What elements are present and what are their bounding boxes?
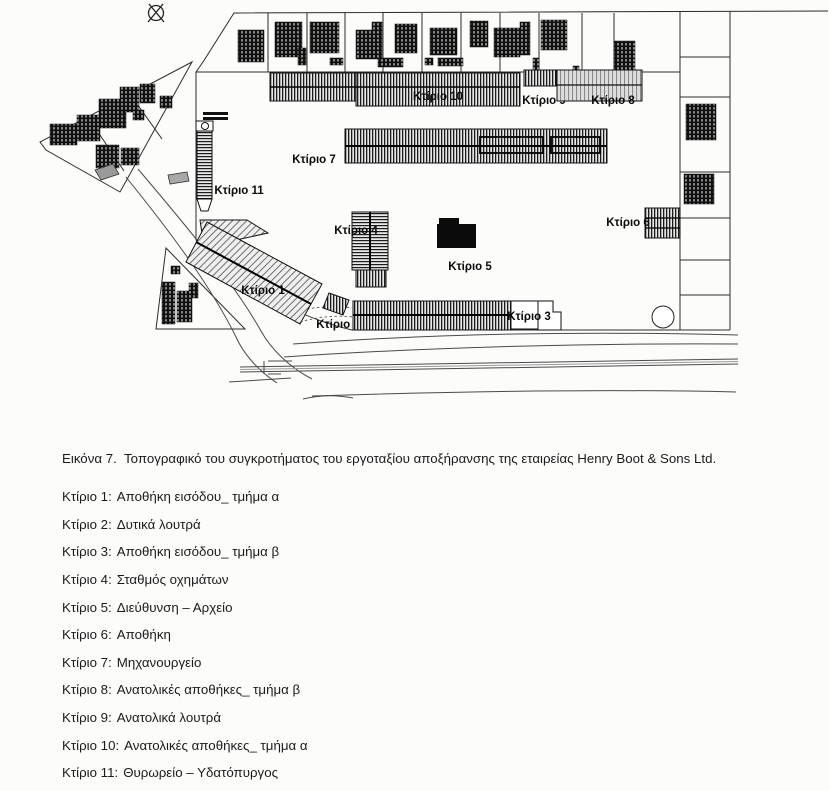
building-10-label: Κτίριο 10 (413, 91, 463, 103)
legend-item-description: Ανατολικά λουτρά (117, 710, 221, 725)
legend-item-description: Αποθήκη (117, 627, 171, 642)
legend-item-description: Αποθήκη εισόδου_ τμήμα β (117, 544, 279, 559)
west-residential-block (40, 62, 192, 192)
legend-item-6: Κτίριο 6:Αποθήκη (62, 621, 662, 649)
legend-item-description: Δυτικά λουτρά (117, 517, 201, 532)
legend-item-description: Ανατολικές αποθήκες_ τμήμα β (117, 682, 300, 697)
legend-item-4: Κτίριο 4:Σταθμός οχημάτων (62, 566, 662, 594)
legend-item-description: Αποθήκη εισόδου_ τμήμα α (117, 489, 279, 504)
legend-item-5: Κτίριο 5:Διεύθυνση – Αρχείο (62, 593, 662, 621)
legend-item-9: Κτίριο 9:Ανατολικά λουτρά (62, 704, 662, 732)
building-5: Κτίριο 5 (437, 218, 492, 273)
legend-item-2: Κτίριο 2:Δυτικά λουτρά (62, 511, 662, 539)
roadside-shed (168, 172, 189, 184)
building-6: Κτίριο 6 (606, 208, 680, 238)
building-5-label: Κτίριο 5 (448, 261, 492, 273)
building-1: Κτίριο 1 (186, 220, 322, 324)
legend-item-description: Ανατολικές αποθήκες_ τμήμα α (124, 738, 307, 753)
legend-item-name: Κτίριο 2: (62, 517, 112, 532)
legend-item-name: Κτίριο 4: (62, 572, 112, 587)
building-11: Κτίριο 11 (196, 112, 264, 211)
legend-item-name: Κτίριο 10: (62, 738, 119, 753)
building-4-label: Κτίριο 4 (334, 225, 378, 237)
legend-item-name: Κτίριο 7: (62, 655, 112, 670)
site-plan-svg: Κτίριο 10 Κτίριο 9 Κτίριο 8 Κτίριο 7 (0, 0, 829, 445)
compass-icon (148, 4, 164, 22)
legend-item-name: Κτίριο 8: (62, 682, 112, 697)
legend-item-description: Θυρωρείο – Υδατόπυργος (123, 765, 278, 780)
legend-item-10: Κτίριο 10:Ανατολικές αποθήκες_ τμήμα α (62, 731, 662, 759)
north-lot-buildings (238, 20, 716, 204)
figure-caption: Εικόνα 7. Τοπογραφικό του συγκροτήματος … (62, 450, 802, 467)
legend-item-7: Κτίριο 7:Μηχανουργείο (62, 649, 662, 677)
building-7: Κτίριο 7 (292, 129, 607, 166)
building-4: Κτίριο 4 (334, 212, 388, 287)
legend-item-name: Κτίριο 11: (62, 765, 118, 780)
building-3: Κτίριο 3 (353, 301, 561, 330)
circular-tank (652, 306, 674, 328)
building-6-label: Κτίριο 6 (606, 217, 650, 229)
legend-item-name: Κτίριο 3: (62, 544, 112, 559)
residential-buildings (50, 84, 172, 168)
building-10: Κτίριο 10 (270, 73, 520, 106)
site-plan-figure: Κτίριο 10 Κτίριο 9 Κτίριο 8 Κτίριο 7 (0, 0, 829, 445)
building-legend: Κτίριο 1:Αποθήκη εισόδου_ τμήμα α Κτίριο… (62, 483, 662, 787)
legend-item-name: Κτίριο 6: (62, 627, 112, 642)
building-1-label: Κτίριο 1 (241, 285, 285, 297)
legend-item-description: Σταθμός οχημάτων (117, 572, 229, 587)
legend-item-11: Κτίριο 11:Θυρωρείο – Υδατόπυργος (62, 759, 662, 787)
legend-item-description: Μηχανουργείο (117, 655, 202, 670)
building-11-label: Κτίριο 11 (214, 185, 264, 197)
legend-item-3: Κτίριο 3:Αποθήκη εισόδου_ τμήμα β (62, 538, 662, 566)
legend-item-description: Διεύθυνση – Αρχείο (117, 600, 233, 615)
building-3-label: Κτίριο 3 (507, 311, 551, 323)
legend-item-name: Κτίριο 5: (62, 600, 112, 615)
roads (126, 169, 738, 399)
legend-item-name: Κτίριο 1: (62, 489, 112, 504)
document-page: Κτίριο 10 Κτίριο 9 Κτίριο 8 Κτίριο 7 (0, 0, 829, 791)
building-8: Κτίριο 8 (557, 70, 642, 107)
building-8-label: Κτίριο 8 (591, 95, 635, 107)
legend-item-8: Κτίριο 8:Ανατολικές αποθήκες_ τμήμα β (62, 676, 662, 704)
building-7-label: Κτίριο 7 (292, 154, 336, 166)
legend-item-1: Κτίριο 1:Αποθήκη εισόδου_ τμήμα α (62, 483, 662, 511)
legend-item-name: Κτίριο 9: (62, 710, 112, 725)
